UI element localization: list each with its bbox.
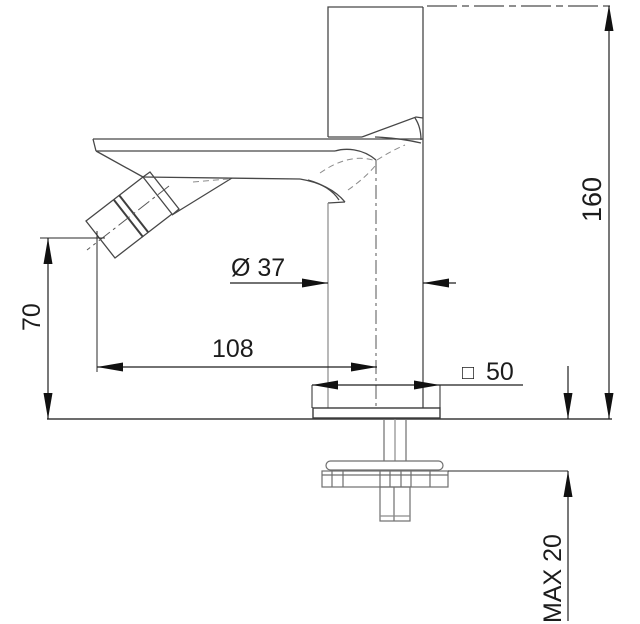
- dimension-spout-height: 70: [18, 238, 105, 419]
- faucet-body: [86, 7, 440, 418]
- dim-label-square-symbol: □: [462, 362, 474, 384]
- waterfall-channel: [300, 145, 405, 203]
- dim-label-70: 70: [18, 303, 46, 331]
- dim-label-diameter: Ø 37: [231, 254, 285, 282]
- lever-handle: [328, 7, 423, 140]
- threaded-shank: [384, 419, 406, 461]
- mounting-hardware: [322, 419, 448, 521]
- aerator-head: [86, 177, 172, 258]
- dimension-max-thickness: MAX 20: [448, 366, 573, 623]
- faucet-dimension-drawing: 160 70 108 Ø 37 □ 50: [0, 0, 640, 624]
- technical-drawing-page: 160 70 108 Ø 37 □ 50: [0, 0, 640, 624]
- dim-label-108: 108: [212, 335, 254, 363]
- dimension-body-diameter: Ø 37: [230, 254, 456, 288]
- dimension-base-square: □ 50: [312, 358, 523, 408]
- washer: [326, 461, 443, 470]
- dim-label-50: 50: [486, 358, 514, 386]
- dimension-spout-reach: 108: [97, 231, 377, 372]
- dimension-overall-height: 160: [427, 5, 614, 419]
- clamp-bracket: [322, 471, 448, 487]
- dim-label-160: 160: [577, 177, 607, 222]
- spout-blade: [93, 137, 423, 160]
- dim-label-max-20: MAX 20: [539, 534, 567, 623]
- base-plate: [313, 408, 440, 418]
- aerator-centerline: [87, 186, 169, 250]
- fixing-nut: [380, 487, 410, 521]
